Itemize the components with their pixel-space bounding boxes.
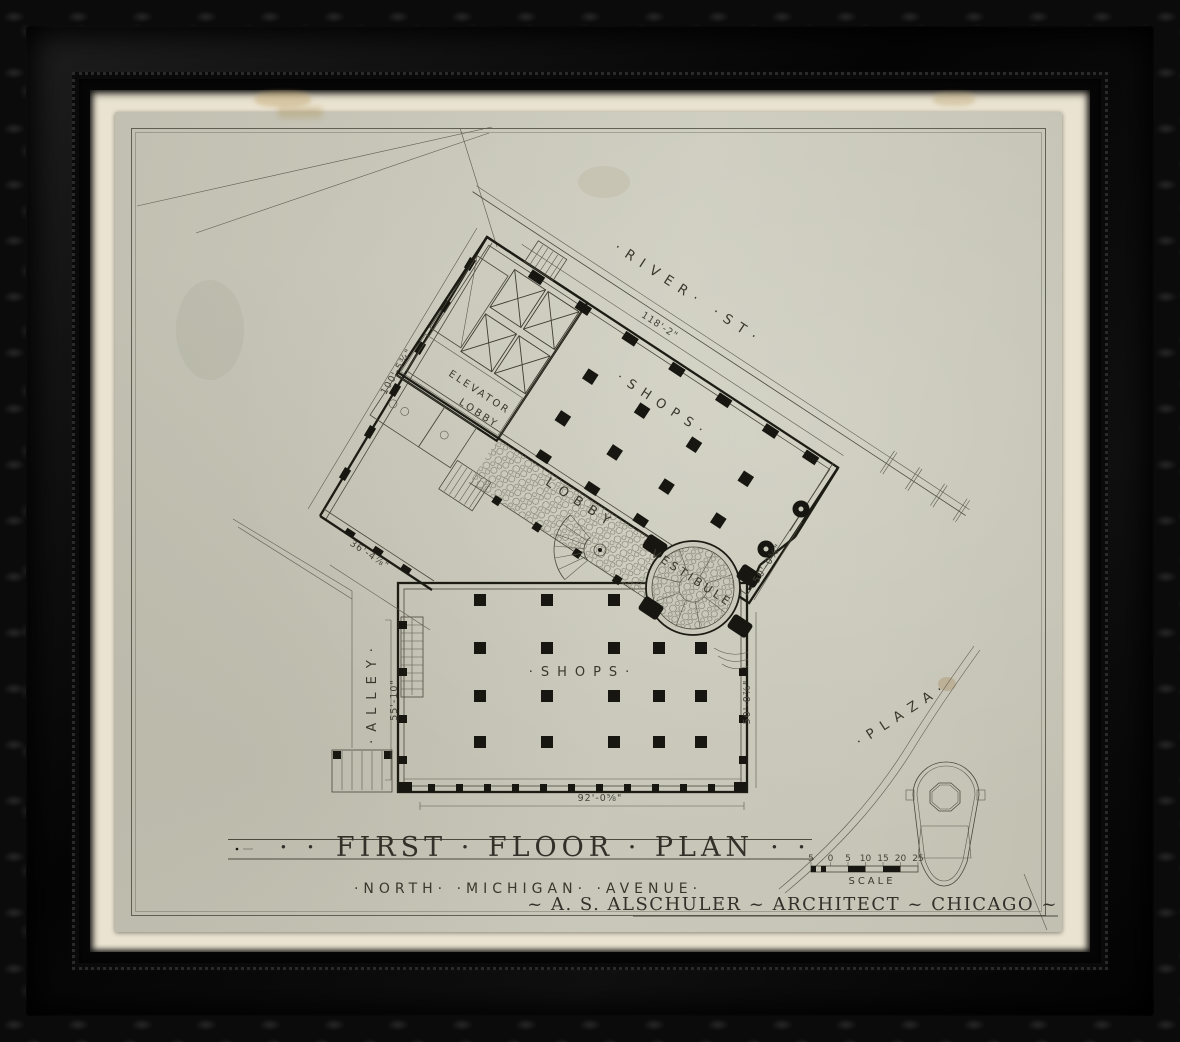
sidewalk-ticks <box>880 451 969 522</box>
shops-lower-label: ·SHOPS· <box>529 665 638 680</box>
plaza-label: ·PLAZA· <box>853 677 953 749</box>
floor-plan-drawing: ·RIVER· ·ST· 118'-2" ·SHOPS· ELEVATOR LO… <box>0 0 1180 1042</box>
dim-west-wall: 36'-4⅞" <box>348 538 391 572</box>
west-walls <box>320 237 492 590</box>
architect-credit: ~ A. S. ALSCHULER ~ ARCHITECT ~ CHICAGO … <box>527 894 1058 915</box>
island-ramp <box>918 826 971 858</box>
scale-tick-labels: 50510152025 <box>808 854 924 864</box>
vestibule-entry-steps <box>714 648 748 669</box>
island-octagon <box>930 783 960 811</box>
dim-michigan-frontage: 92'-0⅝" <box>578 793 623 804</box>
river-st-label: ·RIVER· ·ST· <box>611 239 766 348</box>
shops-upper-label: ·SHOPS· <box>614 370 713 442</box>
scale-label: SCALE <box>848 876 895 887</box>
framed-artwork: ·RIVER· ·ST· 118'-2" ·SHOPS· ELEVATOR LO… <box>0 0 1180 1042</box>
scale-bar: 50510152025 SCALE <box>808 854 924 887</box>
alley-label: ·ALLEY· <box>365 640 380 744</box>
wall-pilasters-lower <box>399 621 747 792</box>
dim-alley-side: 55'-10" <box>389 679 400 721</box>
dim-east-side: 50'-0⅞" <box>742 680 753 725</box>
sheet-title: · ·FIRST · FLOOR · PLAN· · <box>279 832 811 863</box>
alley-neighbor-building <box>332 750 392 792</box>
title-block: · ·FIRST · FLOOR · PLAN· · ·NORTH· ·MICH… <box>228 832 1058 916</box>
